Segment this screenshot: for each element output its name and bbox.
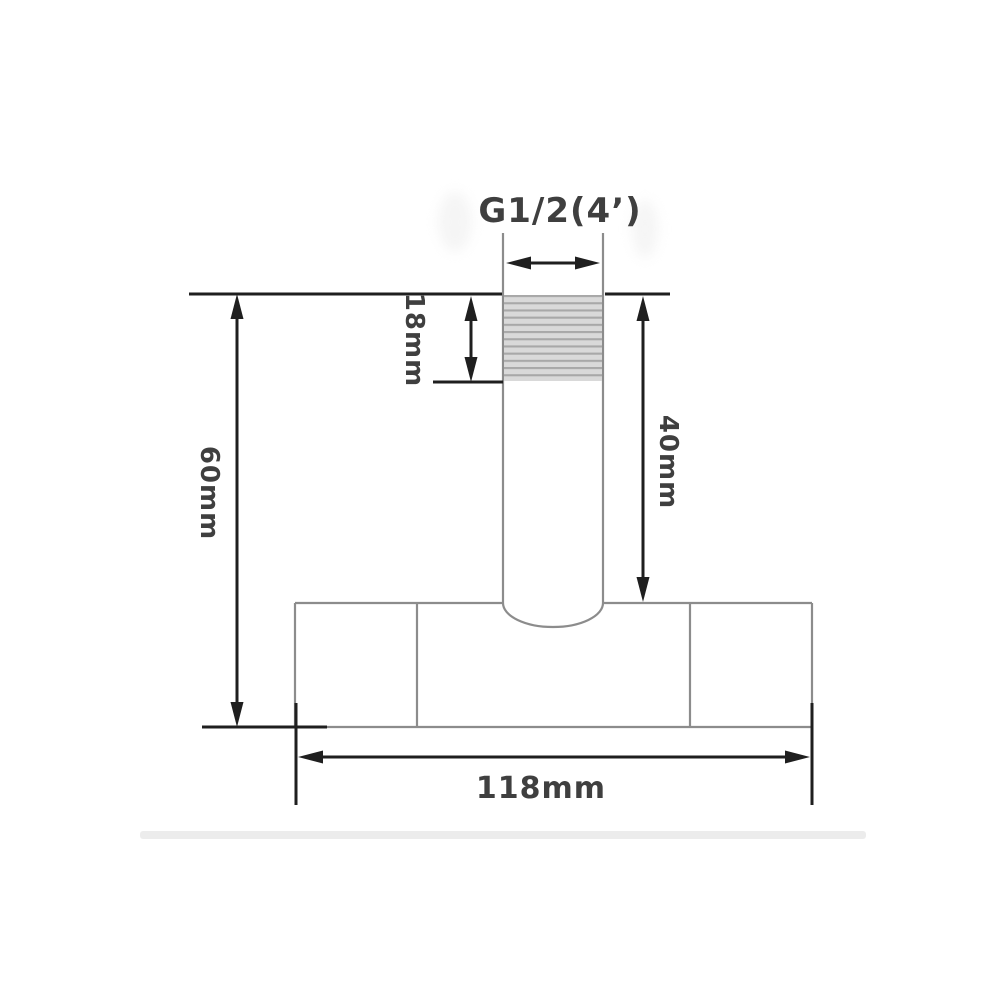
base-width-label: 118mm — [476, 774, 606, 804]
page-divider-strip — [140, 831, 866, 839]
thread-spec-label: G1/2(4’) — [478, 194, 641, 228]
dim-118mm-left-head — [298, 751, 323, 764]
thread-hatch — [504, 295, 602, 381]
dim-40mm-down-head — [637, 577, 650, 602]
dim-60mm-up-head — [231, 294, 244, 319]
pipe-bottom-arc — [503, 603, 603, 627]
drawing-canvas: G1/2(4’) 18mm 40mm 60mm 118mm — [0, 0, 1000, 1000]
dim-118mm-right-head — [785, 751, 810, 764]
dim-60mm-down-head — [231, 702, 244, 727]
dim-18mm-down-head — [465, 357, 478, 382]
thread-width-arrow-left-head — [506, 257, 531, 270]
thread-length-label: 18mm — [401, 293, 427, 387]
total-height-label: 60mm — [196, 446, 222, 540]
dim-18mm-up-head — [465, 296, 478, 321]
thread-width-arrow-right-head — [575, 257, 600, 270]
dim-40mm-up-head — [637, 296, 650, 321]
dimension-lines — [189, 257, 812, 806]
dimension-drawing — [0, 0, 1000, 1000]
pipe-length-label: 40mm — [655, 415, 681, 509]
